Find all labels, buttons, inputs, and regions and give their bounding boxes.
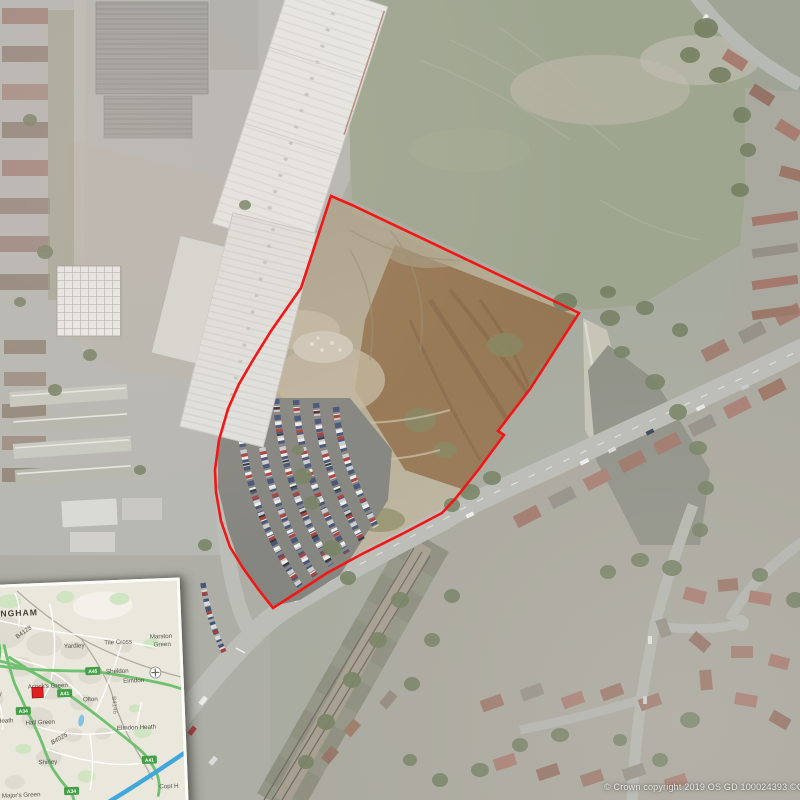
svg-text:Olton: Olton: [83, 696, 99, 704]
compass-icon: [150, 667, 161, 678]
map-screenshot: MINGHAM Tile Cross Marston Green Yardley…: [0, 0, 800, 800]
svg-text:A41: A41: [60, 691, 70, 697]
svg-text:Elmdon: Elmdon: [123, 677, 145, 685]
svg-text:Sheldon: Sheldon: [106, 668, 130, 676]
inset-map: MINGHAM Tile Cross Marston Green Yardley…: [0, 577, 189, 800]
svg-text:Tile Cross: Tile Cross: [104, 638, 132, 646]
svg-text:Green: Green: [154, 641, 172, 649]
svg-text:Yardley: Yardley: [64, 642, 86, 650]
inset-map-canvas: MINGHAM Tile Cross Marston Green Yardley…: [0, 581, 186, 800]
svg-text:Shirley: Shirley: [38, 758, 58, 766]
svg-text:A34: A34: [67, 789, 77, 795]
city-label: MINGHAM: [0, 607, 38, 619]
svg-text:Marston: Marston: [150, 633, 173, 641]
site-location-marker: [32, 687, 43, 698]
svg-text:Copt H: Copt H: [159, 783, 179, 791]
svg-text:A41: A41: [145, 758, 155, 764]
svg-text:Heath: Heath: [0, 717, 14, 725]
copyright-text: © Crown copyright 2019 OS GD 100024393 ©…: [604, 782, 800, 792]
svg-text:Hall Green: Hall Green: [25, 719, 55, 727]
svg-text:A34: A34: [19, 709, 29, 715]
svg-text:A45: A45: [88, 669, 98, 675]
